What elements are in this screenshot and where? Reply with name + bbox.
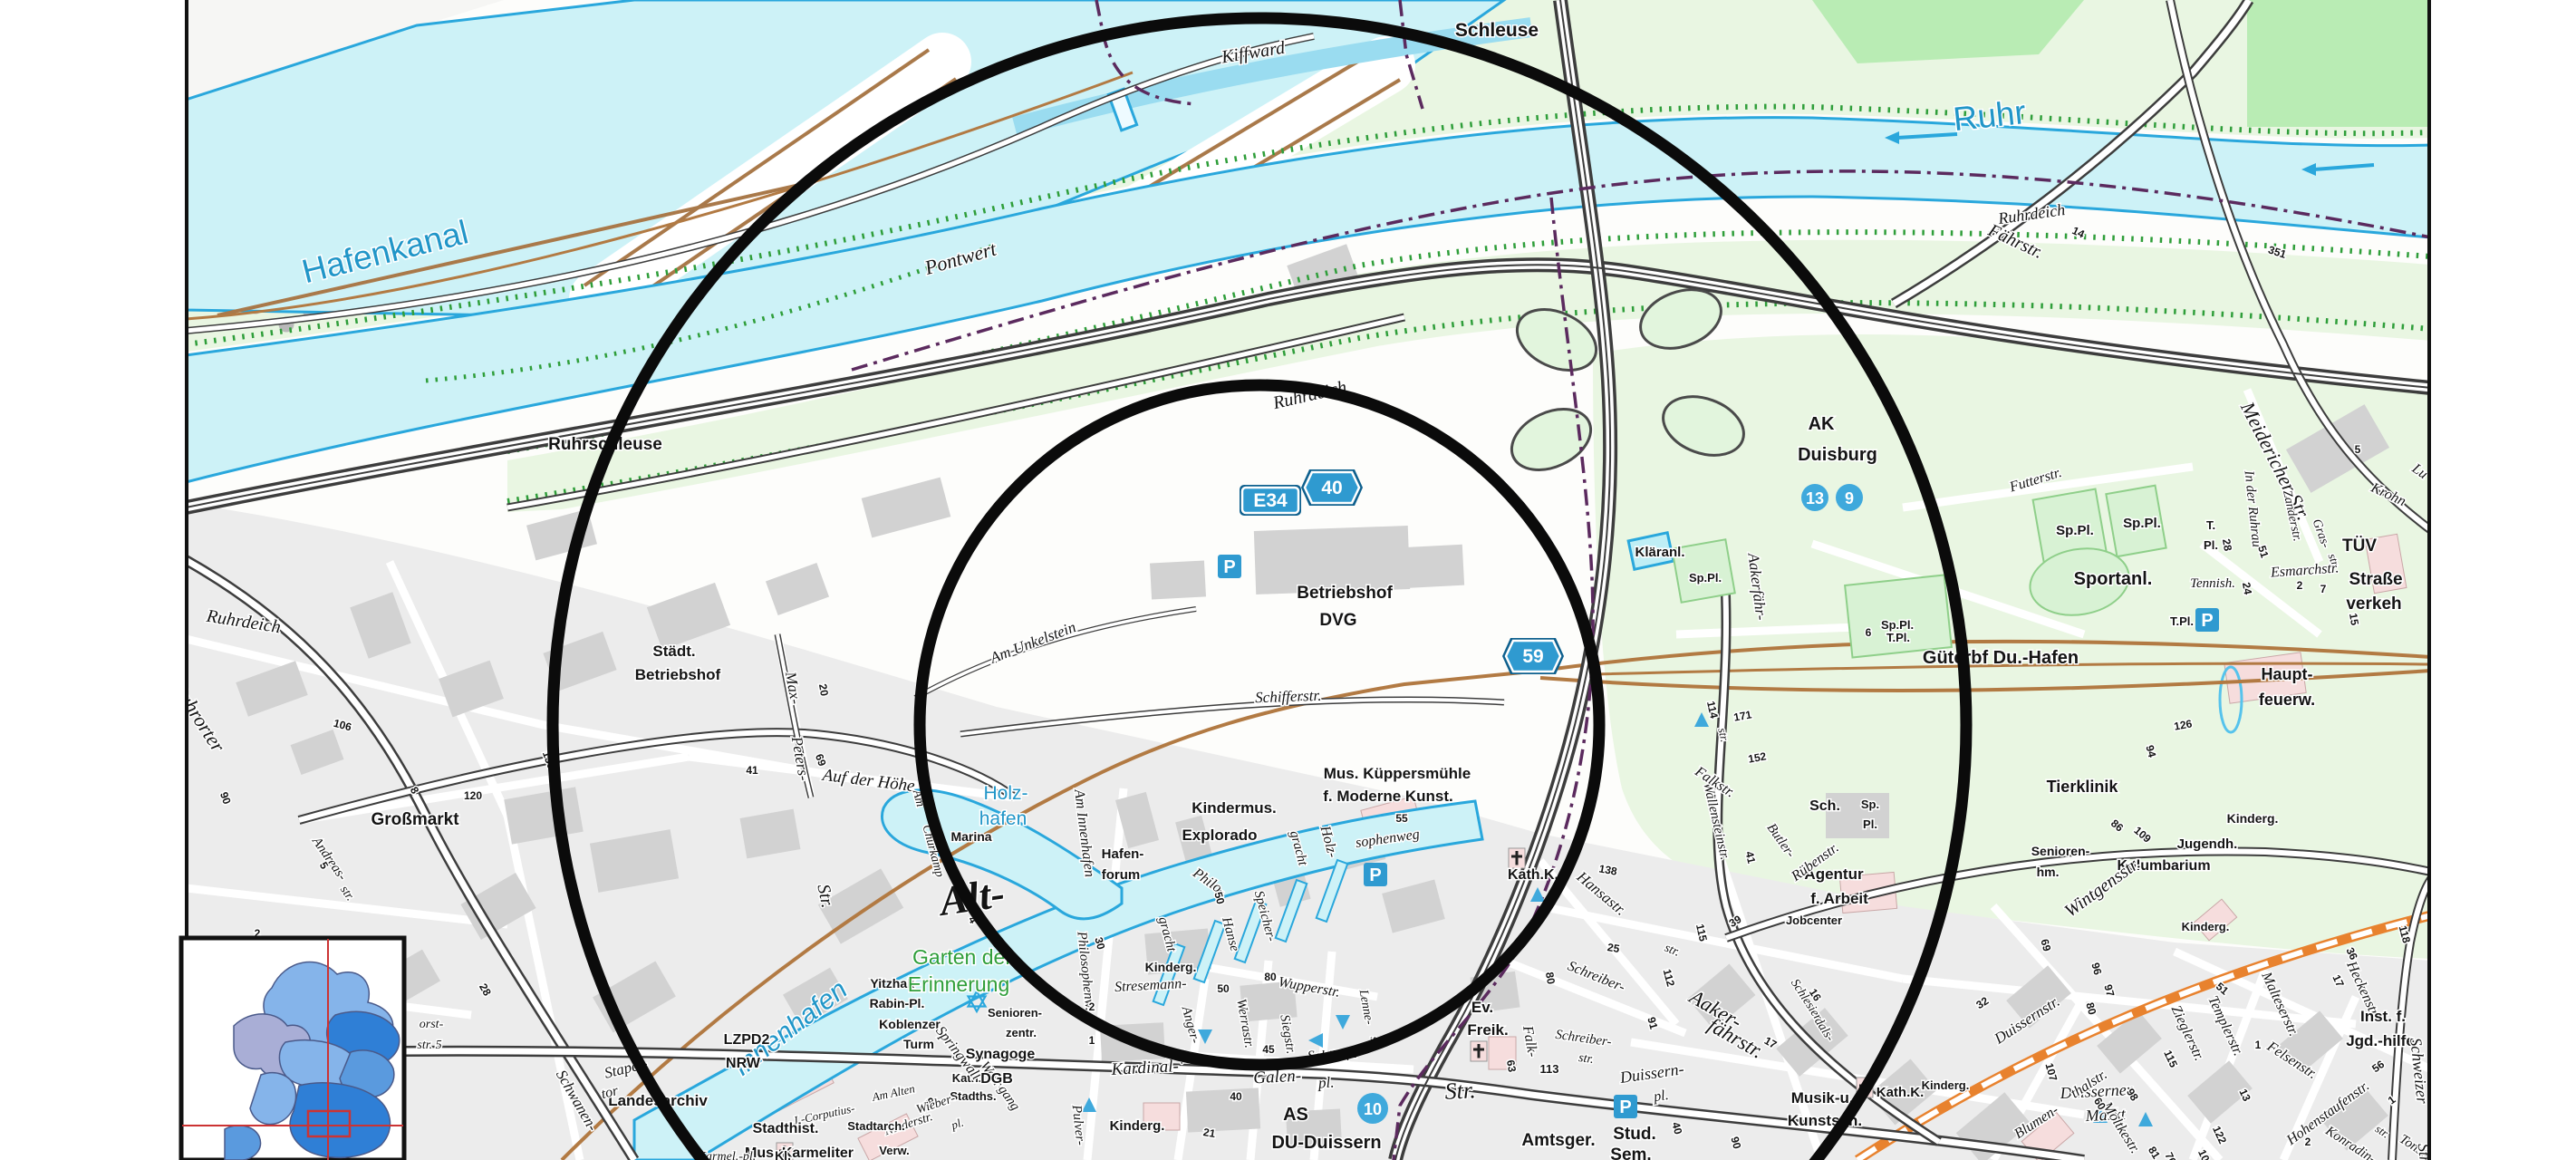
svg-text:P: P	[1369, 865, 1381, 885]
parking-icon: P	[1364, 863, 1387, 886]
map-label: 80	[1264, 971, 1277, 983]
map-label: pl.	[1652, 1087, 1670, 1105]
map-label: Amtsger.	[1521, 1131, 1595, 1150]
svg-text:P: P	[1619, 1097, 1631, 1117]
map-label: hm.	[2037, 865, 2060, 879]
map-label: Sp.	[1861, 797, 1879, 811]
map-label: Schifferstr.	[1255, 687, 1322, 707]
parking-icon: P	[1614, 1095, 1637, 1118]
map-label: 40	[1230, 1090, 1242, 1103]
map-label: TÜV	[2342, 536, 2377, 556]
map-label: Schleuse	[1455, 20, 1539, 41]
map-label: Senioren-	[2031, 844, 2090, 858]
map-label: Tennish.	[2190, 576, 2235, 591]
map-label: LZPD2	[724, 1032, 770, 1048]
map-label: Betriebshof	[1297, 584, 1393, 603]
map-label: Koblenzer	[879, 1017, 941, 1031]
map-label: 113	[1540, 1062, 1559, 1076]
map-label: Rabin-Pl.	[870, 996, 925, 1010]
map-label: T.Pl.	[1886, 631, 1910, 644]
map-page: HafenkanalRuhrInnenhafenHolz-hafenKiffwa…	[0, 0, 2576, 1160]
map-label: 120	[464, 789, 482, 802]
map-label: 2	[2305, 1136, 2311, 1148]
map-label: Jobcenter	[1786, 913, 1842, 927]
map-label: Mus. Küppersmühle	[1324, 765, 1471, 782]
map-label: 24	[2240, 582, 2254, 596]
map-label: Str.	[1444, 1077, 1476, 1105]
map-label: Synagoge	[966, 1047, 1036, 1062]
map-label: 80	[1543, 971, 1558, 986]
map-label: NRW	[726, 1056, 761, 1071]
map-label: 63	[1504, 1059, 1519, 1074]
map-label: Freik.	[1467, 1021, 1508, 1039]
autobahn-badge-59: 59	[1502, 638, 1564, 674]
svg-text:40: 40	[1321, 478, 1342, 498]
map-label: str.	[1577, 1051, 1595, 1067]
map-label: pl.	[1317, 1074, 1334, 1092]
map-label: Holz-	[983, 783, 1028, 804]
map-label: 2	[1089, 1000, 1095, 1013]
map-label: Sportanl.	[2074, 569, 2153, 589]
map-label: 25	[1606, 941, 1621, 955]
map-label: Jugendh.	[2177, 836, 2238, 852]
map-label: Großmarkt	[371, 810, 459, 829]
map-label: Pl.	[2204, 538, 2218, 552]
map-label: Sp.Pl.	[1881, 618, 1914, 632]
map-label: Explorado	[1182, 826, 1257, 844]
map-label: Kath.K.	[1877, 1085, 1925, 1100]
map-label: Tierklinik	[2047, 778, 2119, 796]
map-label: forum	[1102, 867, 1141, 883]
svg-text:P: P	[1223, 557, 1235, 577]
inset-overview-map	[181, 938, 404, 1160]
map-label: 20	[816, 683, 831, 698]
autobahn-badge-40: 40	[1301, 469, 1363, 506]
map-label: Sch.	[1809, 798, 1840, 814]
map-label: Verw.	[879, 1144, 909, 1157]
map-label: Güterbf Du.-Hafen	[1923, 648, 2079, 668]
map-label: Stud.	[1613, 1125, 1656, 1144]
map-label: DGB	[980, 1071, 1013, 1087]
map-label: Inst. f.	[2360, 1008, 2406, 1025]
map-label: 50	[1217, 982, 1230, 995]
map-geometry: HafenkanalRuhrInnenhafenHolz-hafenKiffwa…	[141, 0, 2436, 1160]
map-label: Kläranl.	[1635, 545, 1684, 560]
map-label: Sp.Pl.	[1689, 571, 1722, 585]
exit-badge-10: 10	[1357, 1093, 1388, 1124]
svg-text:59: 59	[1522, 646, 1543, 667]
map-label: 55	[1395, 812, 1408, 825]
map-label: 1	[1089, 1034, 1095, 1047]
parking-icon: P	[1218, 555, 1241, 578]
exit-badge-13: 13	[1801, 484, 1828, 511]
map-label: Kl.	[775, 1148, 791, 1160]
map-label: Str.	[2415, 1143, 2435, 1160]
map-label: Pl.	[1863, 817, 1877, 831]
map-label: Kath.K.	[1508, 867, 1558, 883]
map-label: 41	[746, 764, 758, 777]
svg-text:9: 9	[1845, 489, 1854, 507]
map-label: Städt.	[652, 643, 695, 660]
map-label: Kinderg.	[2182, 920, 2230, 933]
map-label: AS	[1283, 1105, 1308, 1125]
svg-text:E34: E34	[1253, 490, 1288, 511]
svg-text:13: 13	[1806, 489, 1824, 507]
map-label: Mus. Karmeliter	[745, 1145, 854, 1160]
map-label: Sem.	[1610, 1145, 1651, 1160]
map-label: verkeh	[2346, 594, 2401, 614]
svg-text:10: 10	[1364, 1100, 1382, 1118]
map-label: Musik-u.-	[1791, 1089, 1859, 1107]
map-label: 6	[1866, 626, 1872, 639]
map-label: str. 5	[417, 1039, 441, 1052]
map-label: DVG	[1319, 611, 1356, 630]
map-label: Erinnerung	[908, 972, 1010, 996]
map-label: hafen	[979, 808, 1028, 829]
map-label: Stadthist.	[753, 1121, 819, 1136]
map-label: Kinderg.	[1145, 960, 1197, 974]
map-label: Haupt-	[2262, 665, 2313, 683]
map-label: 1	[2255, 1039, 2262, 1051]
map-label: Sp.Pl.	[2056, 523, 2094, 538]
map-label: Duisburg	[1798, 445, 1877, 465]
parking-icon: P	[2195, 608, 2219, 632]
map-label: DU-Duissern	[1271, 1133, 1381, 1153]
green-bright-ne	[2247, 0, 2431, 127]
map-label: f. Moderne Kunst.	[1323, 788, 1453, 805]
map-label: Turm	[903, 1037, 934, 1051]
map-label: Kindermus.	[1192, 799, 1277, 817]
map-label: Stadths.	[950, 1089, 996, 1103]
map-label: Hafen-	[1102, 846, 1144, 862]
map-label: 5	[2355, 443, 2361, 456]
map-label: Kinderg.	[1922, 1078, 1970, 1092]
map-label: 2	[2297, 579, 2303, 592]
map-label: 45	[1262, 1043, 1275, 1056]
map-label: Kardinal-	[1110, 1057, 1179, 1079]
map-label: Ev.	[1471, 999, 1493, 1016]
building	[1399, 545, 1464, 589]
map-label: Marina	[950, 829, 991, 844]
map-label: Stadtarch.	[847, 1119, 905, 1133]
map-label: 15	[2347, 613, 2361, 627]
map-label: Kinderg.	[1110, 1118, 1165, 1134]
map-label: 7	[2320, 583, 2327, 595]
euroroute-badge-E34: E34	[1240, 485, 1301, 516]
svg-text:P: P	[2201, 611, 2213, 631]
building	[1186, 1087, 1260, 1132]
map-label: Betriebshof	[635, 666, 721, 683]
map-label: 28	[2220, 538, 2234, 553]
map-label: T.Pl.	[2170, 614, 2194, 628]
map-label: T.	[2206, 518, 2215, 532]
map-label: Sp.Pl.	[2123, 516, 2161, 531]
map-label: orst-	[420, 1018, 444, 1031]
map-label: feuerw.	[2259, 691, 2315, 709]
map-label: AK	[1809, 414, 1835, 434]
map-label: Straße	[2349, 570, 2402, 589]
map-label: zentr.	[1006, 1026, 1037, 1039]
building	[1150, 560, 1206, 599]
map-canvas: HafenkanalRuhrInnenhafenHolz-hafenKiffwa…	[0, 0, 2576, 1160]
exit-badge-9: 9	[1836, 484, 1863, 511]
map-label: f. Arbeit	[1810, 890, 1868, 907]
map-label: Senioren-	[988, 1006, 1042, 1020]
map-label: Jgd.-hilfe	[2346, 1032, 2415, 1049]
map-label: Ruhr	[1952, 93, 2028, 138]
map-label: er Str.	[141, 793, 188, 821]
map-label: Kinderg.	[2227, 811, 2279, 826]
map-label: 21	[1202, 1126, 1217, 1140]
